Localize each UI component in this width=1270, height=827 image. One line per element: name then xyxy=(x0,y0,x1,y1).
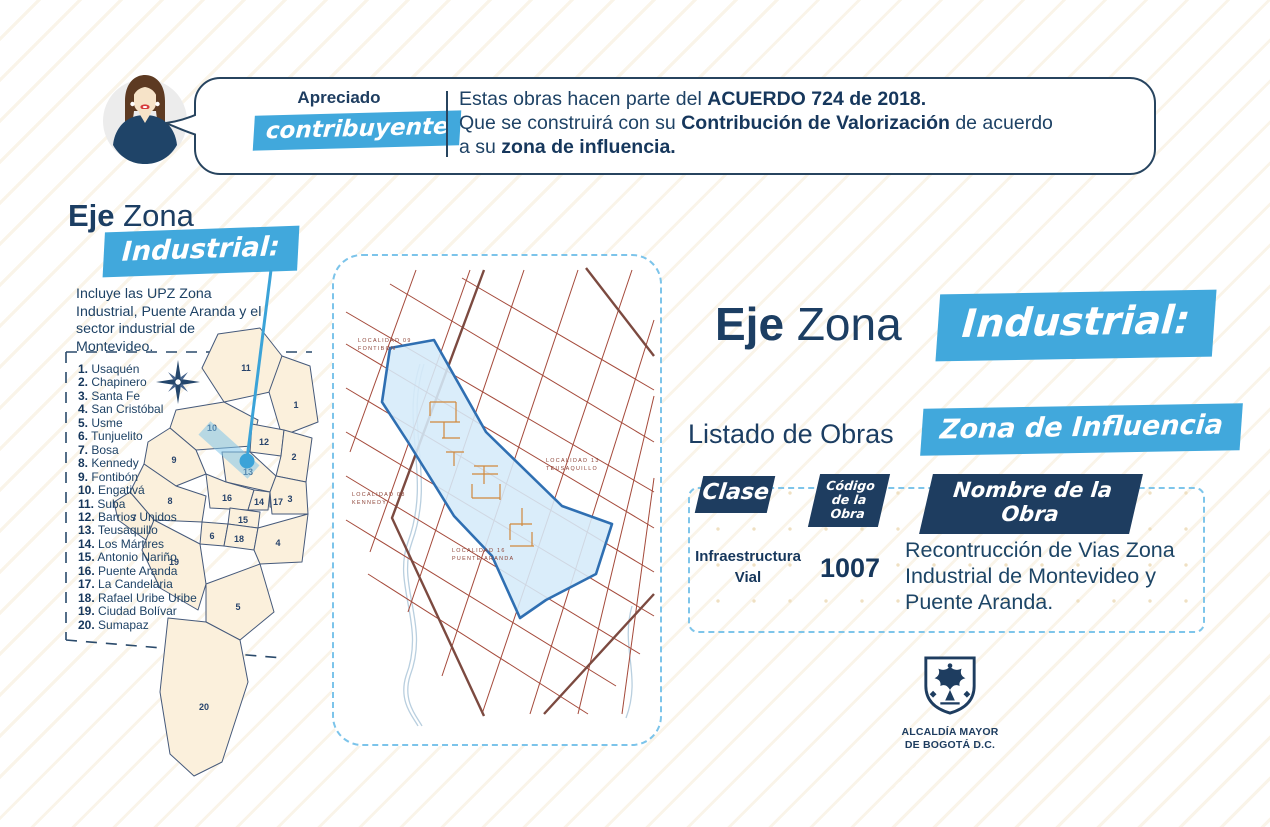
table-cell-codigo: 1007 xyxy=(815,553,885,584)
infographic-page: Apreciado contribuyente Estas obras hace… xyxy=(0,0,1270,827)
map-number: 3 xyxy=(287,494,292,504)
map-number: 13 xyxy=(243,467,253,477)
map-number: 5 xyxy=(235,602,240,612)
compass-rose-icon xyxy=(154,358,202,406)
bubble-message: Estas obras hacen parte del ACUERDO 724 … xyxy=(459,87,1139,159)
map-number: 15 xyxy=(238,515,248,525)
locality-item: 5. Usme xyxy=(78,417,228,430)
map-label-puente-aranda: LOCALIDAD 16 xyxy=(452,548,506,554)
locality-item: 4. San Cristóbal xyxy=(78,403,228,416)
svg-text:KENNEDY: KENNEDY xyxy=(352,500,387,506)
influence-zone xyxy=(382,340,612,618)
map-number: 12 xyxy=(259,437,269,447)
right-industrial-badge: Industrial: xyxy=(935,290,1216,362)
table-header-nombre: Nombre de la Obra xyxy=(919,474,1143,534)
locality-shape-20 xyxy=(160,618,248,776)
table-cell-nombre: Recontrucción de Vias Zona Industrial de… xyxy=(905,537,1197,615)
logo-line2: DE BOGOTÁ D.C. xyxy=(898,739,1002,752)
street-map-panel: LOCALIDAD 09 FONTIBON LOCALIDAD 13 TEUSA… xyxy=(332,254,662,746)
alcaldia-shield-icon xyxy=(921,655,979,717)
locality-item: 8. Kennedy xyxy=(78,457,228,470)
alcaldia-logo: ALCALDÍA MAYOR DE BOGOTÁ D.C. xyxy=(898,655,1002,752)
map-number: 2 xyxy=(291,452,296,462)
locality-item: 7. Bosa xyxy=(78,444,228,457)
bubble-line3: a su zona de influencia. xyxy=(459,135,1139,159)
left-section-title: Eje Zona xyxy=(68,198,194,234)
table-cell-clase: Infraestructura Vial xyxy=(692,546,804,588)
logo-line1: ALCALDÍA MAYOR xyxy=(898,726,1002,739)
locality-item: 20. Sumapaz xyxy=(78,619,228,632)
locality-item: 9. Fontibón xyxy=(78,471,228,484)
left-industrial-badge: Industrial: xyxy=(103,226,299,278)
table-header-codigo: Código de la Obra xyxy=(808,474,890,527)
listado-de-obras-label: Listado de Obras xyxy=(688,419,894,450)
locality-item: 17. La Candelaria xyxy=(78,578,228,591)
greeting-block: Apreciado contribuyente xyxy=(254,88,424,148)
map-number: 20 xyxy=(199,702,209,712)
locality-shape-4 xyxy=(254,514,308,564)
svg-text:PUENTE ARANDA: PUENTE ARANDA xyxy=(452,556,514,562)
locality-item: 14. Los Mártires xyxy=(78,538,228,551)
locality-item: 2. Chapinero xyxy=(78,376,228,389)
table-header-clase: Clase xyxy=(695,476,776,513)
locality-item: 13. Teusaquillo xyxy=(78,524,228,537)
map-label-teusaquillo: LOCALIDAD 13 xyxy=(546,458,600,464)
locality-item: 3. Santa Fe xyxy=(78,390,228,403)
locality-item: 19. Ciudad Bolívar xyxy=(78,605,228,618)
svg-text:FONTIBON: FONTIBON xyxy=(358,346,396,352)
map-label-kennedy: LOCALIDAD 08 xyxy=(352,492,406,498)
right-section-title: Eje Zona xyxy=(715,297,902,351)
street-map: LOCALIDAD 09 FONTIBON LOCALIDAD 13 TEUSA… xyxy=(334,256,659,743)
locality-item: 10. Engativá xyxy=(78,484,228,497)
greeting-title: Apreciado xyxy=(254,88,424,108)
svg-text:TEUSAQUILLO: TEUSAQUILLO xyxy=(546,466,598,472)
locality-item: 18. Rafael Uribe Uribe xyxy=(78,592,228,605)
bubble-divider xyxy=(446,91,448,157)
map-number: 17 xyxy=(273,497,283,507)
map-number: 1 xyxy=(293,400,298,410)
map-number: 11 xyxy=(241,363,251,373)
locality-item: 12. Barrios Unidos xyxy=(78,511,228,524)
locality-list: 1. Usaquén 2. Chapinero 3. Santa Fe 4. S… xyxy=(78,363,228,632)
speech-bubble-tail xyxy=(166,110,200,140)
map-label-fontibon: LOCALIDAD 09 xyxy=(358,338,412,344)
map-number: 4 xyxy=(275,538,280,548)
locality-item: 1. Usaquén xyxy=(78,363,228,376)
greeting-badge: contribuyente xyxy=(253,110,462,150)
bubble-line2: Que se construirá con su Contribución de… xyxy=(459,111,1139,135)
map-number: 14 xyxy=(254,497,264,507)
zona-influencia-badge: Zona de Influencia xyxy=(920,403,1242,456)
locality-item: 6. Tunjuelito xyxy=(78,430,228,443)
locality-item: 15. Antonio Nariño xyxy=(78,551,228,564)
bubble-line1: Estas obras hacen parte del ACUERDO 724 … xyxy=(459,87,1139,111)
map-number: 18 xyxy=(234,534,244,544)
locality-item: 11. Suba xyxy=(78,498,228,511)
locality-item: 16. Puente Aranda xyxy=(78,565,228,578)
left-description: Incluye las UPZ Zona Industrial, Puente … xyxy=(76,286,274,356)
